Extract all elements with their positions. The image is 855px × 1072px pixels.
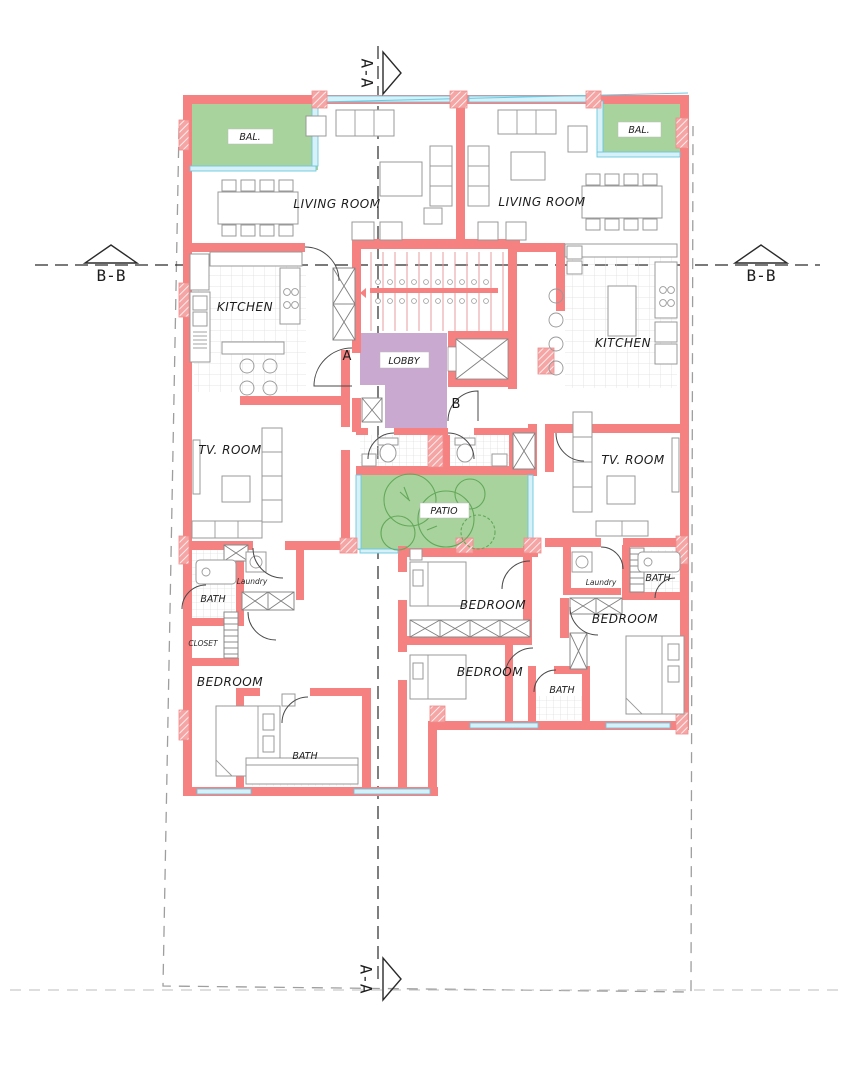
property-boundary [10,126,845,992]
bed-right-bedroom [626,636,684,714]
washer-laundry-right [572,552,592,572]
floor-plan-sheet: A-A A-A B-B B-B BAL. BAL. LIVING ROOM LI… [0,0,855,1072]
dining-set-left [218,180,298,236]
label-balcony-left: BAL. [239,132,260,143]
bed-center-top [410,549,466,606]
closet-shelves [224,612,238,658]
label-tv-room-right: TV. ROOM [601,453,665,467]
label-tv-room-left: TV. ROOM [198,443,262,457]
label-bath-center: BATH [549,685,574,696]
label-bath-right-top: BATH [645,573,670,584]
duct-shaft [513,433,535,469]
bath-center-floor [534,696,582,720]
label-door-a: A [343,349,352,364]
section-label-bb-left: B-B [97,266,126,285]
tub-bath-left [196,560,236,584]
living-room-left-furniture [306,110,452,240]
label-laundry-left: Laundry [237,577,268,586]
section-label-aa-top: A-A [358,59,377,88]
staircase [360,252,503,331]
duct-shaft [333,268,355,340]
label-kitchen-left: KITCHEN [217,300,273,314]
dining-set-right [582,174,662,230]
section-arrow-bb-right [735,245,787,263]
elevator [448,331,516,387]
label-living-room-right: LIVING ROOM [498,195,585,209]
section-arrow-bb-left [85,245,137,263]
label-patio: PATIO [430,506,458,517]
wardrobe-box [224,545,248,561]
label-bedroom-left: BEDROOM [197,675,263,689]
tub-bath-right [638,552,680,572]
section-label-bb-right: B-B [747,266,776,285]
label-bath-bottom-left: BATH [292,751,317,762]
label-balcony-right: BAL. [628,125,649,136]
label-kitchen-right: KITCHEN [595,336,651,350]
label-bedroom-right: BEDROOM [592,612,658,626]
label-door-b: B [452,397,461,412]
wardrobe-strip [242,592,294,610]
floor-plan-canvas: A-A A-A B-B B-B BAL. BAL. LIVING ROOM LI… [0,0,855,1072]
label-bedroom-center-bottom: BEDROOM [457,665,523,679]
label-lobby: LOBBY [388,356,420,367]
section-arrow-aa-bottom [383,958,401,1000]
living-room-right-furniture [468,110,587,240]
section-arrow-aa-top [383,52,401,94]
wardrobe-box [570,633,587,669]
section-label-aa-bottom: A-A [357,965,376,994]
wardrobe-box [362,398,382,422]
stair-handrail [370,288,498,293]
label-bedroom-center-top: BEDROOM [460,598,526,612]
wardrobe-strip [410,620,530,637]
label-closet: CLOSET [188,639,219,648]
label-living-room-left: LIVING ROOM [293,197,380,211]
label-bath-left-top: BATH [200,594,225,605]
label-laundry-right: Laundry [586,578,617,587]
